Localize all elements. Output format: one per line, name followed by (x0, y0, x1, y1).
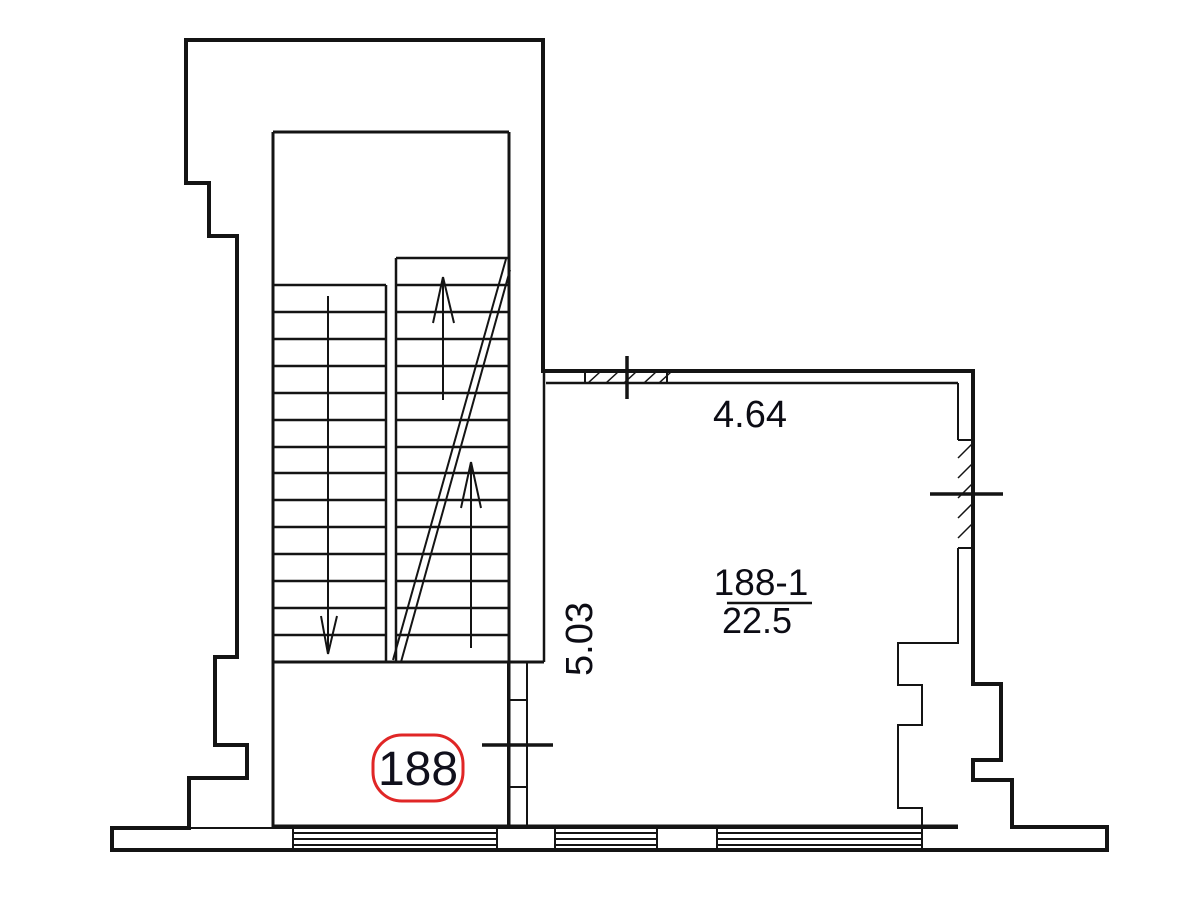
flight-divider (386, 258, 509, 662)
top-window-hatch (588, 372, 671, 383)
facade-window-sills (293, 833, 922, 845)
stairwell-box (273, 132, 509, 828)
arrow-down-left-flight (321, 296, 337, 654)
building-outline (112, 40, 1107, 850)
stair-arrows (321, 277, 481, 654)
dimension-width-label: 4.64 (713, 394, 787, 436)
room-right-wall-inner (898, 383, 958, 828)
outer-wall-path (112, 40, 1107, 850)
unit-badge: 188 (373, 735, 463, 801)
right-window-hatch (958, 443, 973, 538)
floor-plan-canvas: 4.64 5.03 188-1 22.5 188 (0, 0, 1200, 900)
stairs (273, 258, 510, 662)
facade-band (112, 828, 958, 850)
dimension-height-label: 5.03 (559, 602, 601, 676)
interior-walls (273, 132, 958, 828)
room-area-label: 22.5 (722, 600, 792, 641)
room-number-label: 188-1 (714, 562, 809, 603)
stair-treads-left-flight (273, 285, 386, 635)
unit-badge-label: 188 (378, 743, 458, 796)
labels: 4.64 5.03 188-1 22.5 188 (373, 394, 812, 801)
floor-plan: 4.64 5.03 188-1 22.5 188 (0, 0, 1200, 900)
stair-break-line (393, 259, 510, 662)
